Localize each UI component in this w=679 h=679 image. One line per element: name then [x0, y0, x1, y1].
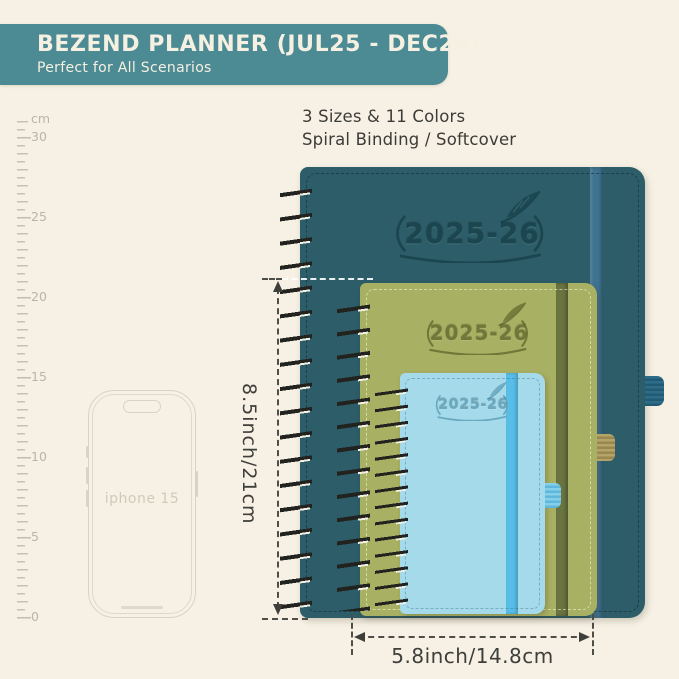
extension-line-bottom — [262, 618, 308, 620]
ruler-major-ticks — [17, 137, 31, 619]
ruler-tick-label: 10 — [31, 449, 61, 464]
year-emboss: 2025-26 — [438, 397, 508, 413]
spiral-wire-highlight — [358, 290, 368, 611]
ruler-tick-label: 15 — [31, 369, 61, 384]
spiral-binding — [337, 290, 370, 611]
phone-volume-down-button — [86, 490, 89, 507]
ruler-tick-label: 20 — [31, 289, 61, 304]
cover-emblem: 2025-26 — [386, 189, 558, 263]
phone-action-button — [86, 446, 89, 458]
pen-loop — [645, 376, 664, 406]
feature-line-sizes: 3 Sizes & 11 Colors — [302, 105, 516, 128]
underline-swoosh — [430, 349, 525, 355]
year-emboss: 2025-26 — [430, 321, 529, 345]
dimension-line-vertical — [277, 288, 279, 608]
underline-swoosh — [401, 255, 540, 263]
spiral-wire-highlight — [396, 380, 406, 609]
arrowhead-down-icon — [273, 604, 283, 615]
phone-home-indicator — [121, 606, 163, 609]
ruler-tick-label: 25 — [31, 209, 61, 224]
feature-text: 3 Sizes & 11 Colors Spiral Binding / Sof… — [302, 105, 516, 151]
header-banner: BEZEND PLANNER (JUL25 - DEC26) Perfect f… — [0, 24, 448, 85]
ruler-tick-label: 30 — [31, 129, 61, 144]
cover-emblem: 2025-26 — [420, 301, 538, 355]
feature-line-binding: Spiral Binding / Softcover — [302, 128, 516, 151]
phone-outline: iphone 15 — [88, 390, 196, 618]
spiral-binding — [280, 173, 312, 610]
product-size-infographic: BEZEND PLANNER (JUL25 - DEC26) Perfect f… — [0, 0, 679, 679]
pen-loop — [597, 434, 615, 461]
pen-loop — [545, 483, 561, 508]
arrowhead-left-icon — [354, 632, 365, 642]
product-subtitle: Perfect for All Scenarios — [37, 60, 448, 76]
dimension-line-horizontal — [358, 636, 587, 638]
product-title: BEZEND PLANNER (JUL25 - DEC26) — [37, 32, 448, 57]
extension-line-top-overlay — [282, 278, 373, 280]
arrowhead-up-icon — [273, 281, 283, 292]
phone-dynamic-island — [123, 400, 161, 413]
arrowhead-right-icon — [579, 632, 590, 642]
spiral-wire-highlight — [300, 173, 310, 610]
height-dimension-label: 8.5inch/21cm — [238, 383, 260, 525]
phone-volume-up-button — [86, 467, 89, 484]
spiral-binding — [375, 380, 408, 609]
cover-emblem: 2025-26 — [431, 381, 515, 421]
width-dimension-label: 5.8inch/14.8cm — [352, 644, 593, 668]
extension-line-top — [262, 278, 282, 280]
underline-swoosh — [438, 417, 506, 421]
year-emboss: 2025-26 — [404, 217, 540, 250]
ruler-tick-label: 5 — [31, 529, 61, 544]
phone-model-label: iphone 15 — [89, 491, 195, 507]
phone-power-button — [196, 471, 199, 497]
elastic-band — [556, 283, 568, 616]
ruler-unit-label: cm — [31, 111, 61, 126]
planner-small-a6: 2025-26 — [400, 373, 545, 614]
ruler-tick-label: 0 — [31, 609, 61, 624]
